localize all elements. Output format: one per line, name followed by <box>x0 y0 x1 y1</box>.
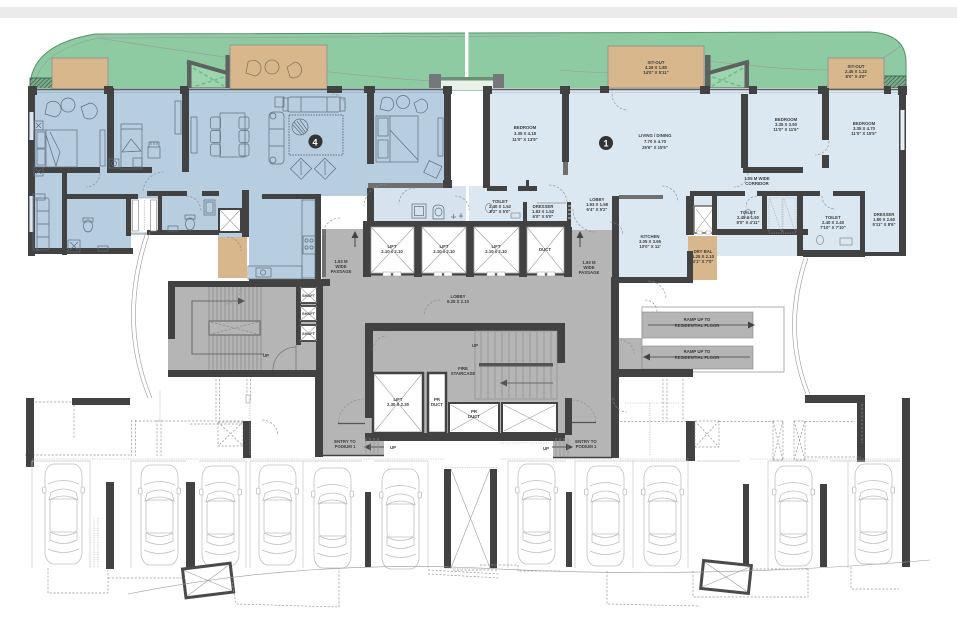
svg-text:8'0" X 4'11": 8'0" X 4'11" <box>736 220 759 225</box>
svg-text:6'0" X 5'0": 6'0" X 5'0" <box>533 214 554 219</box>
svg-text:7'10" X 7'10": 7'10" X 7'10" <box>820 225 846 230</box>
svg-text:LIVING / DINING: LIVING / DINING <box>639 133 673 138</box>
svg-text:STAIRCASE: STAIRCASE <box>451 371 476 376</box>
svg-text:RESIDENTIAL FLOOR: RESIDENTIAL FLOOR <box>675 355 721 360</box>
svg-text:PASSAGE: PASSAGE <box>331 269 352 274</box>
svg-text:9.25 X 2.10: 9.25 X 2.10 <box>447 299 470 304</box>
svg-text:DUCT: DUCT <box>468 414 480 419</box>
svg-text:SHAFT: SHAFT <box>302 293 316 298</box>
svg-text:25'6" X 15'5": 25'6" X 15'5" <box>642 145 668 150</box>
svg-text:11'0" X 15'5": 11'0" X 15'5" <box>851 131 876 136</box>
svg-text:1: 1 <box>603 139 608 149</box>
svg-text:DUCT: DUCT <box>431 402 443 407</box>
svg-text:8'0" X 4'0": 8'0" X 4'0" <box>846 74 867 79</box>
svg-text:5'11" X 8'6": 5'11" X 8'6" <box>872 222 895 227</box>
svg-text:RESIDENTIAL FLOOR: RESIDENTIAL FLOOR <box>675 323 721 328</box>
svg-text:PODIUM 1: PODIUM 1 <box>576 444 597 449</box>
svg-text:3.35 X 4.18: 3.35 X 4.18 <box>514 131 537 136</box>
svg-text:RAMP UP TO: RAMP UP TO <box>684 317 711 322</box>
svg-text:CORRIDOR: CORRIDOR <box>745 181 769 186</box>
svg-text:UP: UP <box>543 446 549 451</box>
svg-text:11'0" X 11'6": 11'0" X 11'6" <box>773 127 798 132</box>
svg-text:4: 4 <box>312 138 317 148</box>
svg-text:UP: UP <box>472 343 478 348</box>
svg-text:SHAFT: SHAFT <box>302 311 316 316</box>
svg-text:11'0" X 13'9": 11'0" X 13'9" <box>512 137 537 142</box>
svg-text:PODIUM 1: PODIUM 1 <box>335 444 356 449</box>
svg-text:RAMP UP TO: RAMP UP TO <box>684 349 711 354</box>
svg-text:DUCT: DUCT <box>539 247 551 252</box>
svg-text:7.70 X 4.70: 7.70 X 4.70 <box>644 139 667 144</box>
svg-text:2.10 x 2.10: 2.10 x 2.10 <box>433 249 455 254</box>
svg-text:2.10 x 2.10: 2.10 x 2.10 <box>381 249 403 254</box>
svg-text:SHAFT: SHAFT <box>302 331 316 336</box>
svg-text:14'0" X 5'11": 14'0" X 5'11" <box>643 70 668 75</box>
svg-text:4'1" X 7'0": 4'1" X 7'0" <box>693 259 714 264</box>
svg-text:2.10 x 2.10: 2.10 x 2.10 <box>485 249 507 254</box>
svg-text:UP: UP <box>390 445 396 450</box>
svg-text:PASSAGE: PASSAGE <box>579 270 600 275</box>
svg-text:8'2" X 5'0": 8'2" X 5'0" <box>490 209 511 214</box>
svg-text:6'4" X 5'2": 6'4" X 5'2" <box>587 207 608 212</box>
svg-text:UP: UP <box>263 353 269 358</box>
svg-text:BEDROOM: BEDROOM <box>514 125 537 130</box>
svg-text:10'0" X 12': 10'0" X 12' <box>639 244 660 249</box>
svg-text:2.30 X 2.30: 2.30 X 2.30 <box>387 402 410 407</box>
